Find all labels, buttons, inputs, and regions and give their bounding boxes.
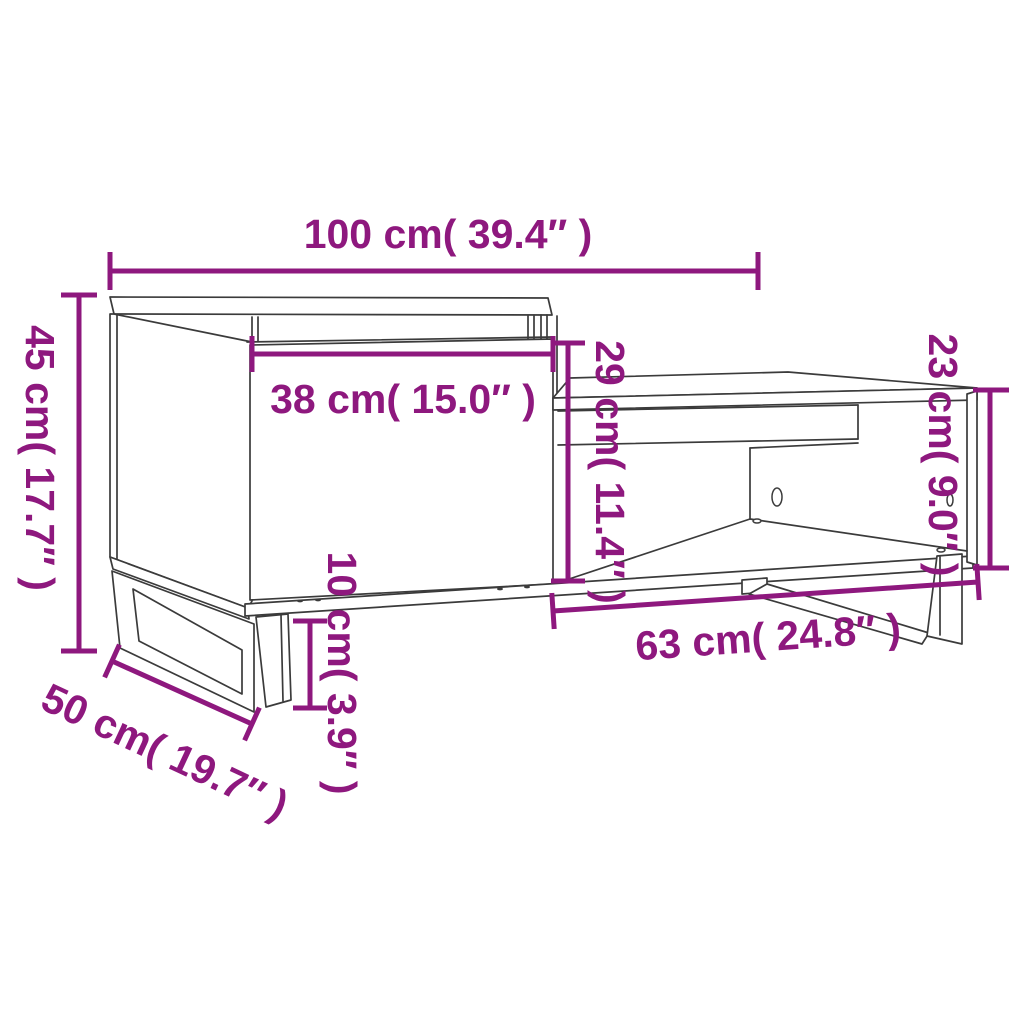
cable-hole	[772, 488, 782, 506]
dimension-depth: 50 cm( 19.7″ )	[35, 645, 295, 829]
dimension-label-table-height: 23 cm( 9.0″ )	[920, 334, 966, 577]
dimension-line	[61, 295, 97, 651]
dimension-opening-height: 29 cm( 11.4″ )	[551, 340, 633, 604]
dimension-label-depth: 50 cm( 19.7″ )	[35, 674, 295, 828]
dimension-line	[973, 390, 1009, 568]
dimension-label-opening-height: 29 cm( 11.4″ )	[587, 340, 633, 604]
dimension-line	[110, 252, 758, 290]
front-leg	[256, 614, 291, 707]
dimension-cabinet-height: 45 cm( 17.7″ )	[17, 295, 97, 651]
dimension-table-height: 23 cm( 9.0″ )	[920, 334, 1009, 577]
furniture-dimension-diagram: 100 cm( 39.4″ ) 45 cm( 17.7″ ) 50 cm( 19…	[0, 0, 1024, 1024]
dimension-label-cabinet-height: 45 cm( 17.7″ )	[17, 325, 63, 591]
dimension-label-total-width: 100 cm( 39.4″ )	[304, 211, 593, 257]
cabinet-top-slab	[110, 297, 552, 315]
dimension-total-width: 100 cm( 39.4″ )	[110, 211, 758, 290]
cabinet-left-side	[110, 314, 252, 608]
dimension-label-shelf-width: 63 cm( 24.8″ )	[634, 605, 902, 669]
dimension-label-leg-height: 10 cm( 3.9″ )	[319, 552, 365, 795]
dimension-label-door-width: 38 cm( 15.0″ )	[270, 376, 536, 422]
shelf-right-panel	[967, 391, 977, 565]
